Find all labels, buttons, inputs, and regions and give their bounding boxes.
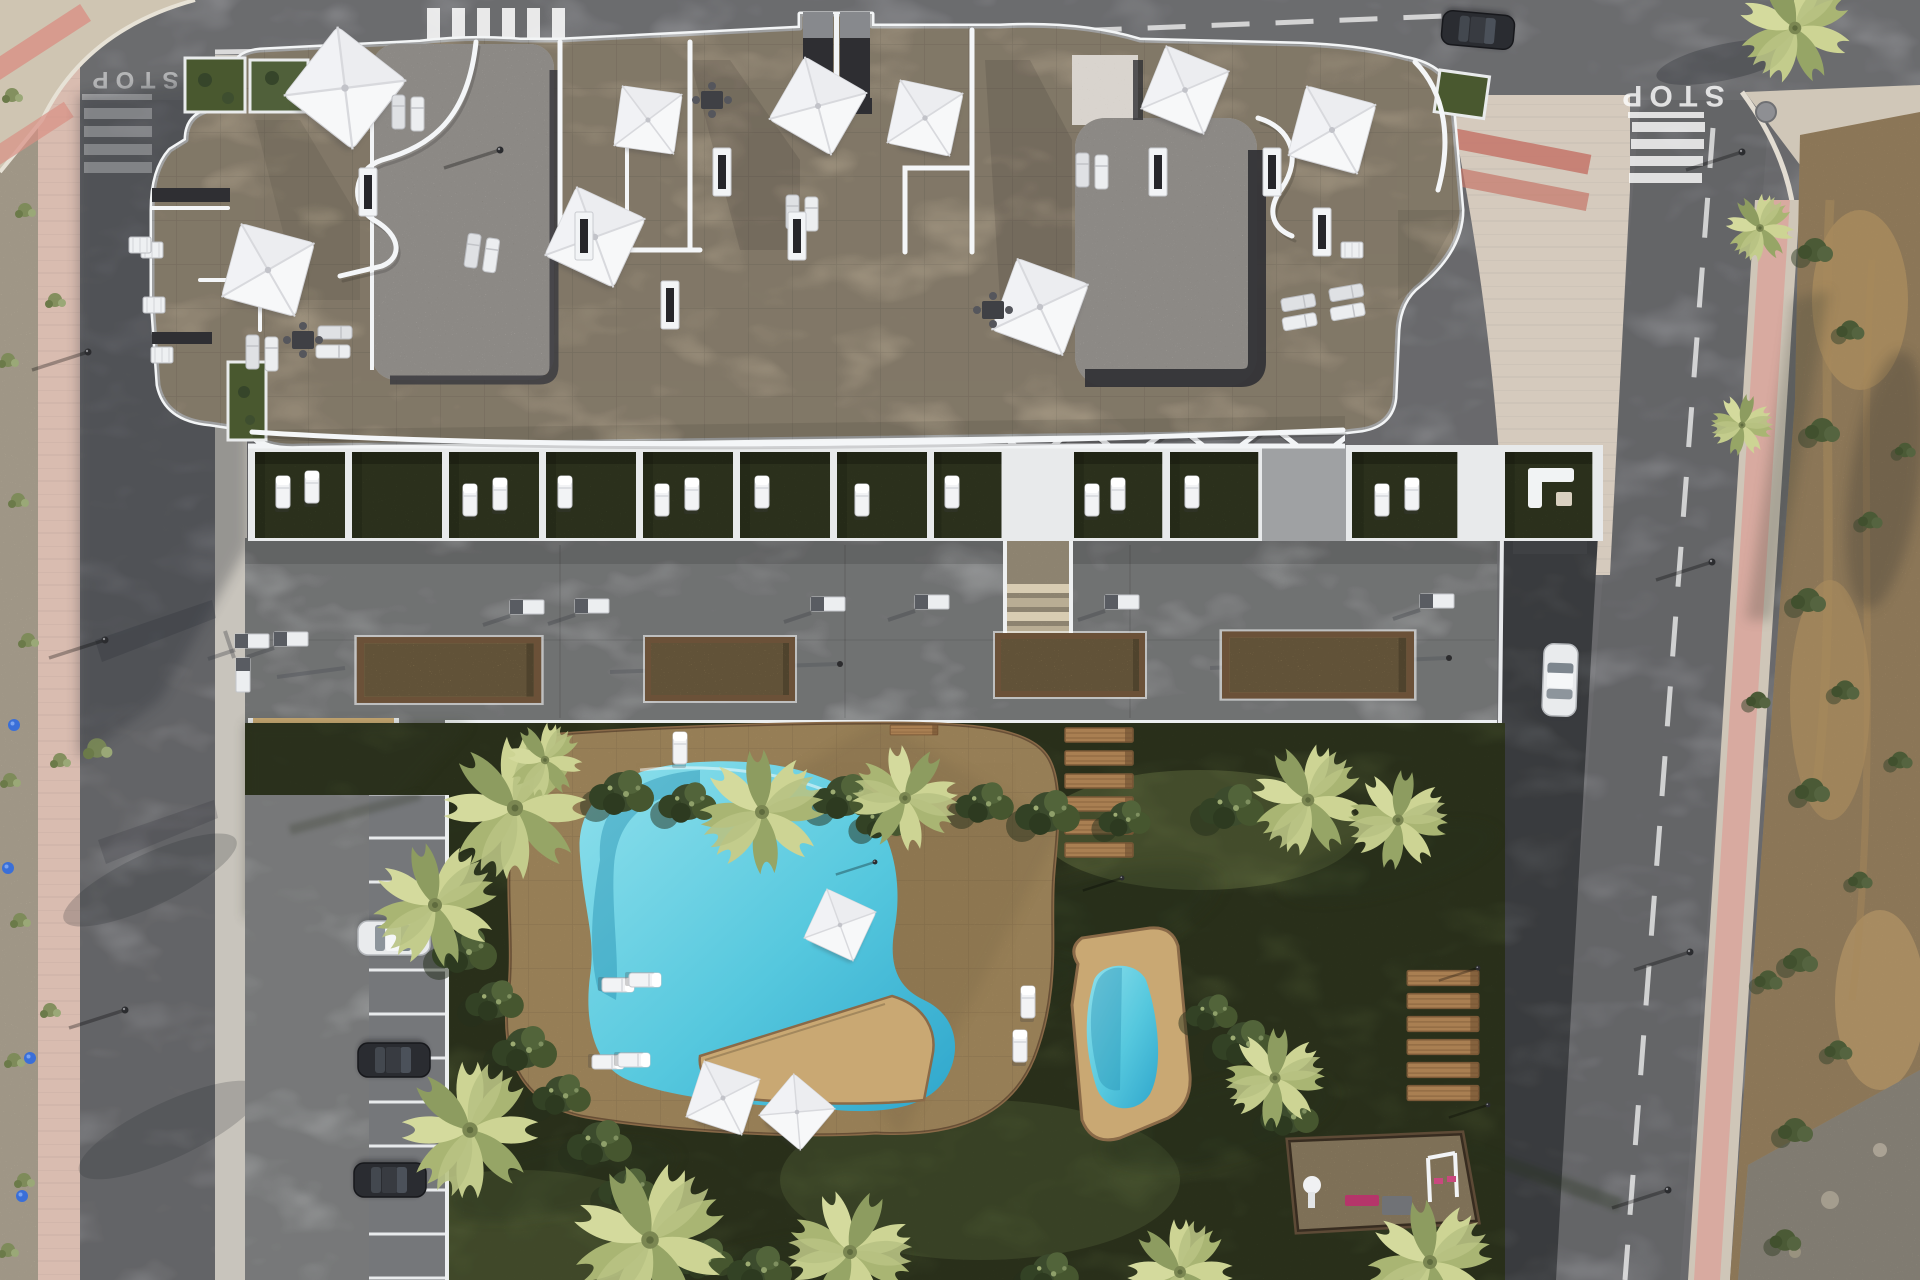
terrace-lounger <box>654 484 669 520</box>
trash-bag-blue <box>24 1052 36 1064</box>
parasol-icon <box>613 86 682 158</box>
terrace-unit <box>1505 452 1592 538</box>
terrace-unit <box>352 452 442 538</box>
ac-unit <box>143 297 165 313</box>
terrace-lounger <box>1084 484 1099 520</box>
terrace-lounger <box>1184 476 1199 512</box>
terrace-lounger <box>492 478 507 514</box>
trash-bag-blue <box>2 862 14 874</box>
play-mat <box>1382 1196 1412 1215</box>
terrace-lounger <box>944 476 959 512</box>
deck-lounger <box>614 1052 650 1067</box>
ac-unit <box>129 237 151 253</box>
stepping-plank <box>1065 843 1133 857</box>
skylight <box>359 168 377 216</box>
car-parked-dark <box>358 1039 430 1077</box>
skylight <box>575 212 593 260</box>
kids-pool <box>1072 928 1190 1140</box>
terrace-unit <box>837 452 927 538</box>
deck-lounger <box>672 732 687 768</box>
ac-unit <box>151 347 173 363</box>
garden-bench <box>1407 1063 1478 1078</box>
terrace-lounger <box>684 478 699 514</box>
garden-bench <box>1407 994 1478 1009</box>
plaza-planter <box>354 635 543 705</box>
plaza-planter <box>993 631 1147 699</box>
plaza-planter <box>1219 629 1416 700</box>
garden-bench <box>1407 1040 1478 1055</box>
terrace-table <box>1556 492 1572 506</box>
skylight <box>788 212 806 260</box>
terrace-sofa <box>1528 468 1542 508</box>
garden-bench <box>1407 1017 1478 1032</box>
terrace-lounger <box>557 476 572 512</box>
trash-bag-blue <box>16 1190 28 1202</box>
skylight <box>1149 148 1167 196</box>
stepping-plank <box>1065 728 1133 742</box>
terrace-lounger <box>304 471 319 507</box>
terrace-lounger <box>1374 484 1389 520</box>
stepping-plank <box>890 725 938 735</box>
picnic-table <box>1303 1176 1321 1194</box>
terrace-unit <box>255 452 345 538</box>
car-driveway-white <box>1538 643 1578 716</box>
stop-marking-right: STOP <box>1615 79 1724 112</box>
terrace-unit <box>1170 452 1258 538</box>
terrace-unit <box>740 452 830 538</box>
skylight <box>1313 208 1331 256</box>
car-street-dark <box>1441 6 1516 50</box>
garden-bench <box>1407 1086 1478 1101</box>
skylight <box>661 281 679 329</box>
play-bench <box>1345 1195 1379 1206</box>
trash-bag-blue <box>8 719 20 731</box>
aerial-render-residential-complex: STOP STOP <box>0 0 1920 1280</box>
stepping-plank <box>1065 774 1133 788</box>
terrace-lounger <box>462 484 477 520</box>
terrace-lounger <box>754 476 769 512</box>
terrace-lounger <box>854 484 869 520</box>
terrace-units <box>255 452 1592 538</box>
deck-lounger <box>1020 986 1035 1022</box>
terrace-lounger <box>1110 478 1125 514</box>
terrace-lounger <box>275 476 290 512</box>
skylight <box>1263 148 1281 196</box>
manhole <box>1756 102 1776 122</box>
skylight <box>713 148 731 196</box>
stepping-plank <box>1065 751 1133 765</box>
ac-unit <box>1341 242 1363 258</box>
terrace-lounger <box>1404 478 1419 514</box>
deck-lounger <box>1012 1030 1027 1066</box>
deck-lounger <box>625 972 661 987</box>
scene-canvas: STOP STOP <box>0 0 1920 1280</box>
entrance-walkway <box>1003 538 1073 644</box>
car-parked-dark <box>354 1159 426 1197</box>
plaza-planter <box>643 635 797 703</box>
